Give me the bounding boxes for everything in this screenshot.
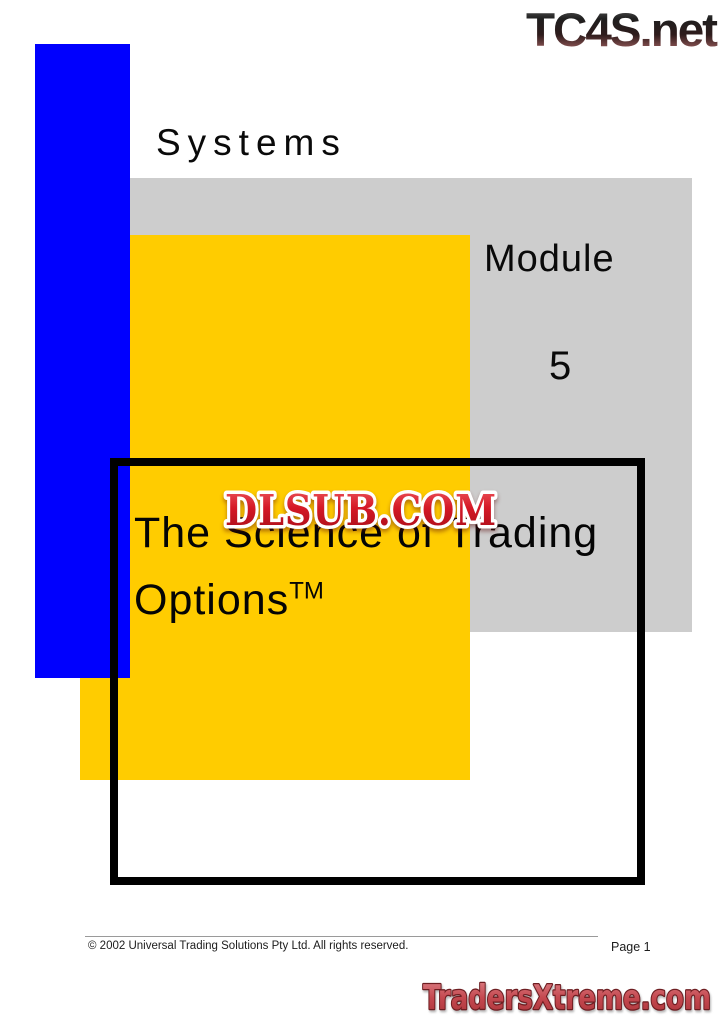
footer-divider [85,936,598,937]
tc4s-logo-text: TC4S.net [526,3,718,56]
tc4s-site-logo[interactable]: TC4S.net [518,2,720,58]
title-line-2: Options [134,576,289,624]
trademark-superscript: TM [289,578,324,605]
tradersxtreme-site-logo[interactable]: TradersXtreme.com [412,974,722,1022]
document-page: { "header": { "site_logo": "TC4S.net" },… [0,0,724,1024]
module-number: 5 [549,344,571,389]
module-label: Module [484,238,615,281]
tradersxtreme-logo-text: TradersXtreme.com [423,978,711,1018]
dlsub-watermark-logo[interactable]: DLSUB.COM [208,481,514,541]
copyright-notice: © 2002 Universal Trading Solutions Pty L… [88,940,408,952]
page-number: Page 1 [611,940,651,954]
dlsub-logo-text: DLSUB.COM [225,486,497,535]
series-kicker: Systems [156,122,347,164]
